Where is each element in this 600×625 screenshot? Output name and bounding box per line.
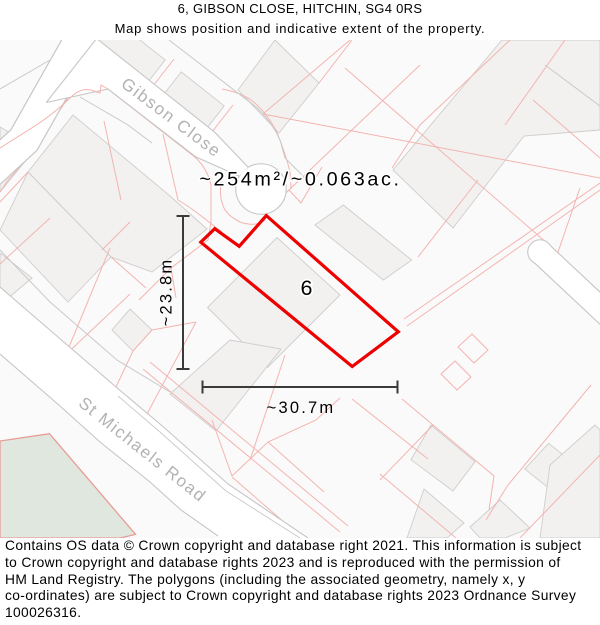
svg-text:~254m²/~0.063ac.: ~254m²/~0.063ac.	[199, 169, 401, 191]
svg-text:6: 6	[301, 276, 313, 300]
svg-text:~23.8m: ~23.8m	[158, 258, 176, 327]
svg-text:~30.7m: ~30.7m	[267, 399, 336, 417]
